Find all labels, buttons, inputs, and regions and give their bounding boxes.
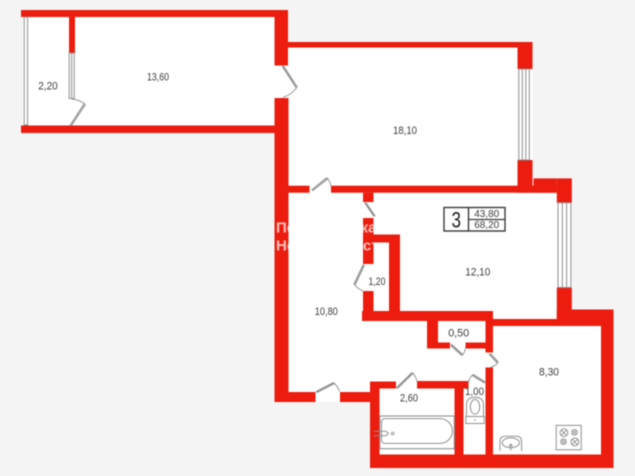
svg-text:18,10: 18,10 [393,125,417,137]
svg-text:8,30: 8,30 [539,367,559,379]
svg-text:3: 3 [452,207,462,232]
svg-text:1,20: 1,20 [369,276,386,288]
svg-text:68,20: 68,20 [474,220,499,231]
svg-text:2,20: 2,20 [38,81,58,93]
svg-text:13,60: 13,60 [147,72,169,84]
svg-text:12,10: 12,10 [465,267,490,279]
svg-text:0,50: 0,50 [448,328,469,340]
svg-text:43,80: 43,80 [474,209,499,220]
svg-text:10,80: 10,80 [315,306,338,318]
svg-text:1,00: 1,00 [465,386,484,398]
svg-text:2,60: 2,60 [400,393,418,405]
